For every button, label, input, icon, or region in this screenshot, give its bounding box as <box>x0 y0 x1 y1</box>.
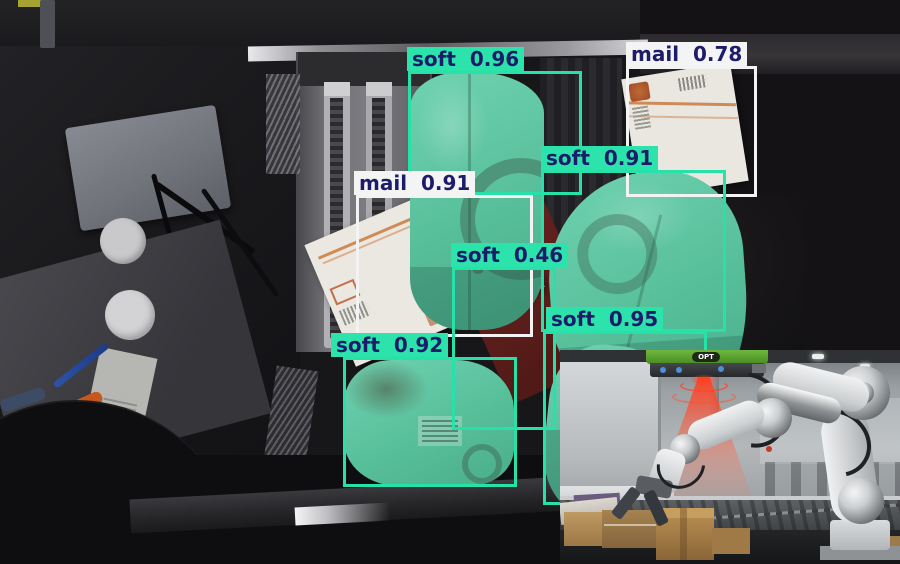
scanner-label-pill: OPT <box>692 352 720 362</box>
vision-system-screenshot: soft 0.96 mail 0.78 soft 0.91 mail 0.91 … <box>0 0 900 564</box>
mount-bracket <box>40 0 55 48</box>
detection-label: soft 0.91 <box>541 146 658 170</box>
scanner-connector <box>752 364 766 373</box>
robot-lower-joint <box>838 478 884 524</box>
detection-box-soft-092 <box>343 357 517 487</box>
box-tape <box>680 508 687 560</box>
detection-label: mail 0.91 <box>354 171 475 195</box>
scanner-lens <box>660 367 666 373</box>
machine-disc <box>105 290 155 340</box>
inset-box-small <box>712 528 750 554</box>
detection-label: soft 0.96 <box>407 47 524 71</box>
detection-label: soft 0.95 <box>546 307 663 331</box>
shiny-wall-texture <box>266 74 300 174</box>
scanner-lens <box>676 367 682 373</box>
detection-label: mail 0.78 <box>626 42 747 66</box>
yellow-part <box>18 0 42 7</box>
bg-red-lamp <box>766 446 772 452</box>
rail-cap <box>324 82 350 96</box>
inset-robot-photo: OPT <box>560 350 900 564</box>
ceiling-light <box>812 354 824 359</box>
robot-base <box>830 520 890 550</box>
detection-label: soft 0.46 <box>451 243 568 267</box>
detection-label: soft 0.92 <box>331 333 448 357</box>
machine-disc <box>100 218 146 264</box>
rail-cap <box>366 82 392 96</box>
scanner-lens <box>718 366 724 372</box>
parcel-string <box>604 524 664 526</box>
